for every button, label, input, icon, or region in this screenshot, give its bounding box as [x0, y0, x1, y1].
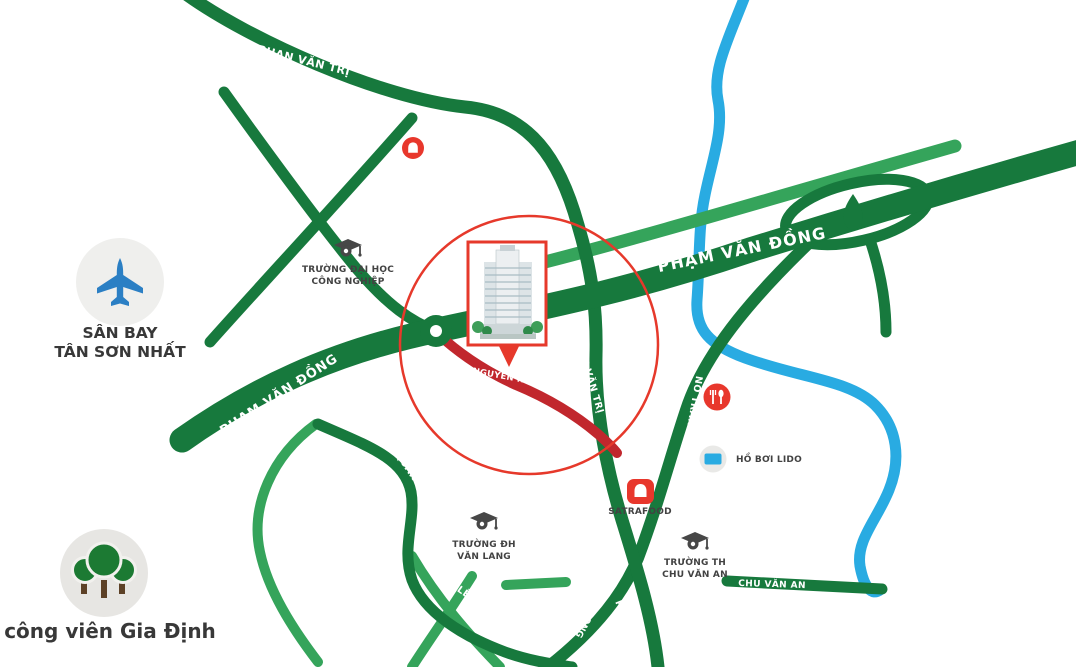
restaurant-icon: [704, 384, 731, 411]
building-marker: [468, 242, 546, 367]
map-canvas: PHAN VĂN TRỊ NGUYỄN VĂN NGHI PHẠM VĂN ĐỒ…: [0, 0, 1076, 667]
store-icon-top: [402, 137, 424, 159]
road-label-phan-van-tri-top: PHAN VĂN TRỊ: [256, 43, 351, 79]
graduation-cap-icon: [470, 512, 498, 530]
graduation-cap-icon: [681, 532, 709, 550]
airport-label-line1: SÂN BAY: [82, 323, 158, 342]
univ-cong-nghiep-line1: TRƯỜNG ĐẠI HỌC: [302, 263, 394, 275]
roundabout-center: [430, 325, 442, 337]
univ-van-lang-line1: TRƯỜNG ĐH: [452, 538, 515, 550]
road-light-west-curve: [258, 424, 318, 662]
airport-poi: [76, 238, 164, 326]
road-label-partial-nguyen: UYỄN: [731, 179, 762, 198]
road-light-stub: [506, 582, 566, 585]
univ-van-lang-line2: VĂN LANG: [457, 550, 511, 562]
road-interchange-south-stub: [870, 240, 886, 332]
satrafood-label: SATRAFOOD: [608, 507, 672, 517]
ho-boi-lido-label: HỒ BƠI LIDO: [736, 452, 802, 465]
park-label: công viên Gia Định: [4, 619, 216, 643]
satrafood-icon: [627, 479, 654, 504]
airport-label-line2: TÂN SƠN NHẤT: [54, 340, 186, 361]
interchange-teardrop: [844, 194, 863, 230]
pool-icon: [700, 446, 727, 473]
road-le-quang-dinh: [318, 424, 572, 667]
school-chu-van-an-line1: TRƯỜNG TH: [664, 556, 726, 568]
school-chu-van-an-line2: CHU VĂN AN: [662, 568, 728, 580]
road-label-nguyen-van-nghi: NGUYỄN VĂN NGHI: [249, 114, 324, 205]
river: [697, 0, 896, 592]
location-map: PHAN VĂN TRỊ NGUYỄN VĂN NGHI PHẠM VĂN ĐỒ…: [0, 0, 1076, 667]
road-cross-diagonal: [210, 118, 412, 342]
park-poi: [60, 529, 148, 617]
univ-cong-nghiep-line2: CÔNG NGHIỆP: [311, 275, 384, 287]
